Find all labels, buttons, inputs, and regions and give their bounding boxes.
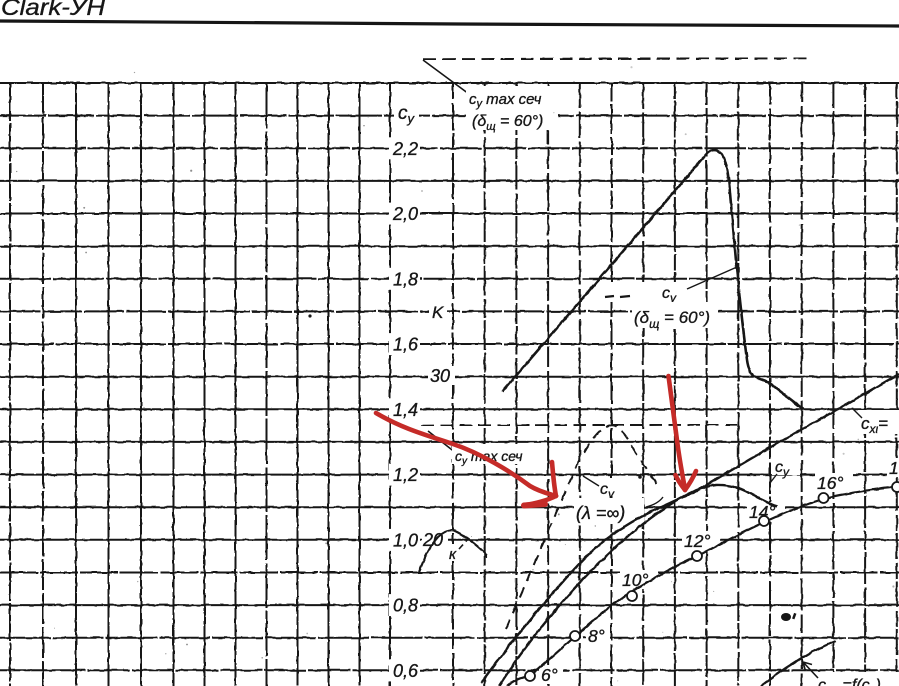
svg-text:Clark-УН: Clark-УН <box>1 0 105 20</box>
svg-text:2,2: 2,2 <box>392 139 418 159</box>
svg-text:12°: 12° <box>684 531 710 551</box>
svg-text:0,6: 0,6 <box>393 661 419 681</box>
svg-text:1,0: 1,0 <box>393 530 418 550</box>
svg-text:30: 30 <box>430 366 450 386</box>
svg-text:(λ =∞): (λ =∞) <box>576 503 625 523</box>
svg-text:1,2: 1,2 <box>393 465 418 485</box>
svg-text:0,8: 0,8 <box>393 596 418 616</box>
svg-text:1: 1 <box>889 458 899 478</box>
svg-text:2,0: 2,0 <box>392 204 418 224</box>
svg-text:6°: 6° <box>541 665 558 685</box>
svg-text:1,4: 1,4 <box>393 400 418 420</box>
svg-text:K: K <box>432 303 444 322</box>
svg-text:1,8: 1,8 <box>393 269 418 289</box>
svg-text:к: к <box>449 546 457 563</box>
svg-text:1,6: 1,6 <box>393 335 419 355</box>
svg-text:8°: 8° <box>588 626 605 646</box>
svg-text:16°: 16° <box>817 473 843 493</box>
svg-text:10°: 10° <box>622 570 648 590</box>
svg-text:20: 20 <box>422 530 443 550</box>
